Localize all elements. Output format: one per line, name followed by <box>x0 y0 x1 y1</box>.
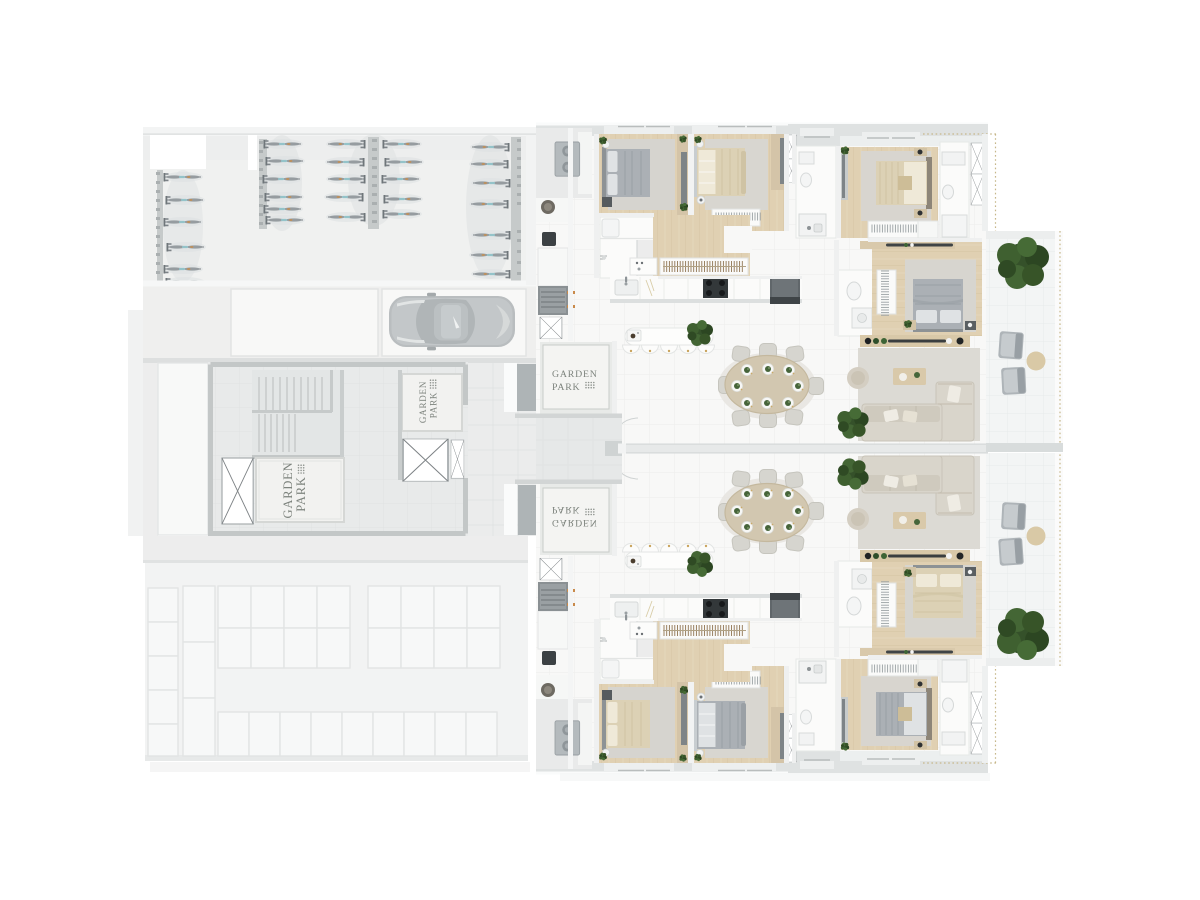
svg-text:GARDEN: GARDEN <box>418 381 428 423</box>
svg-text:PARK: PARK <box>294 476 308 511</box>
svg-text:PARK: PARK <box>429 392 439 418</box>
svg-text:GARDEN: GARDEN <box>281 462 295 519</box>
